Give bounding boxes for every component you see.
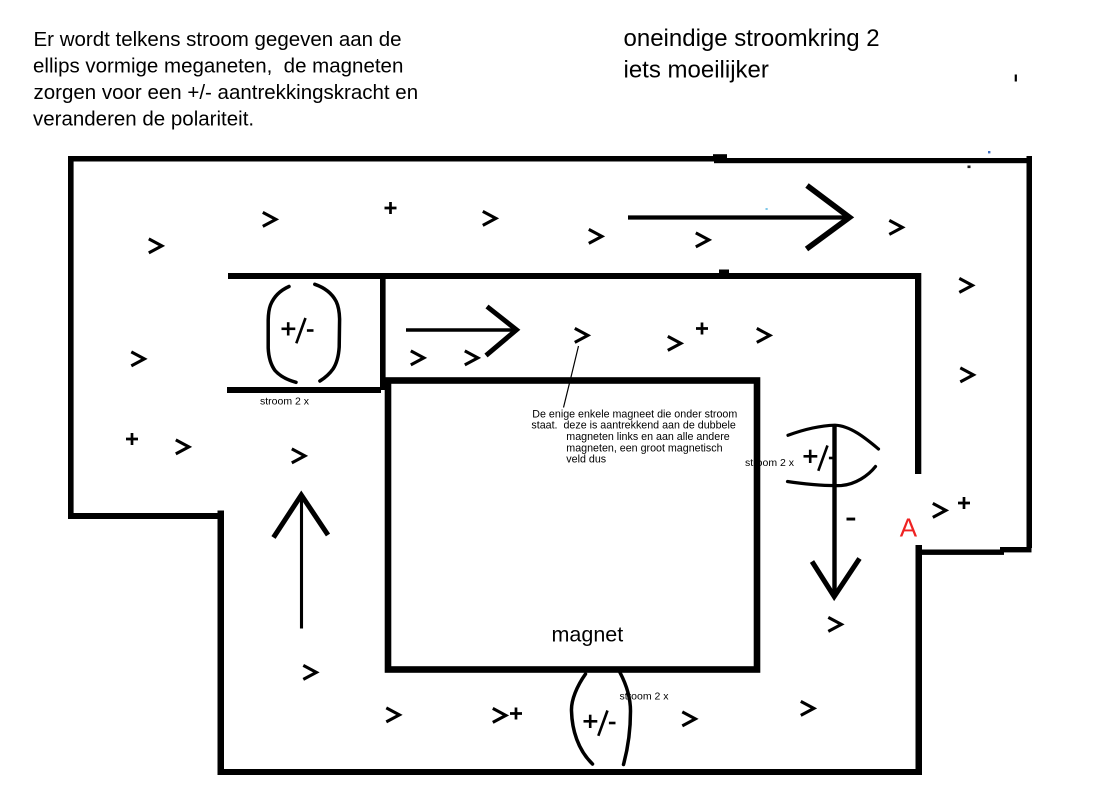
svg-text:stroom 2 x: stroom 2 x xyxy=(745,457,795,469)
svg-text:iets moeilijker: iets moeilijker xyxy=(624,57,769,84)
svg-text:magnet: magnet xyxy=(552,623,624,647)
svg-text:ellips vormige meganeten, de: ellips vormige meganeten, de magneten xyxy=(33,54,403,77)
svg-text:zorgen voor een +/- aantrekkin: zorgen voor een +/- aantrekkingskracht e… xyxy=(34,81,419,104)
svg-text:De enige enkele magneet die on: De enige enkele magneet die onder stroom xyxy=(532,408,737,420)
svg-text:staat. deze is aantrekkend aa: staat. deze is aantrekkend aan de dubbel… xyxy=(531,420,735,432)
svg-text:veranderen de polariteit.: veranderen de polariteit. xyxy=(33,107,254,130)
svg-text:veld dus: veld dus xyxy=(566,454,606,466)
svg-text:magneten links en aan alle and: magneten links en aan alle andere xyxy=(566,431,729,443)
svg-text:stroom 2 x: stroom 2 x xyxy=(260,396,310,408)
svg-text:magneten, een groot magnetisch: magneten, een groot magnetisch xyxy=(566,442,722,454)
svg-text:A: A xyxy=(900,513,918,543)
svg-text:oneindige stroomkring 2: oneindige stroomkring 2 xyxy=(624,25,880,52)
svg-text:Er wordt telkens stroom gegeve: Er wordt telkens stroom gegeven aan de xyxy=(34,28,402,51)
